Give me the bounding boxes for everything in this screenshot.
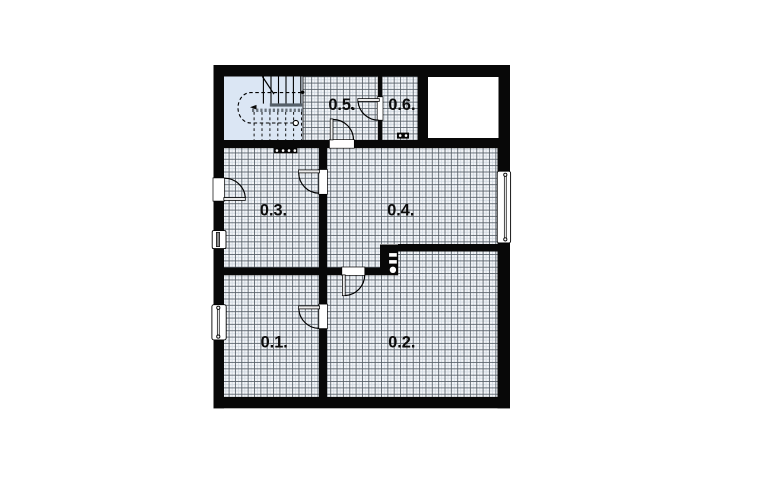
svg-text:0.5.: 0.5. bbox=[328, 96, 355, 114]
svg-text:0.2.: 0.2. bbox=[388, 334, 415, 352]
svg-text:0.3.: 0.3. bbox=[260, 202, 287, 220]
svg-text:0.6.: 0.6. bbox=[388, 96, 415, 114]
svg-text:0.1.: 0.1. bbox=[261, 334, 288, 352]
svg-text:0.4.: 0.4. bbox=[387, 202, 414, 220]
